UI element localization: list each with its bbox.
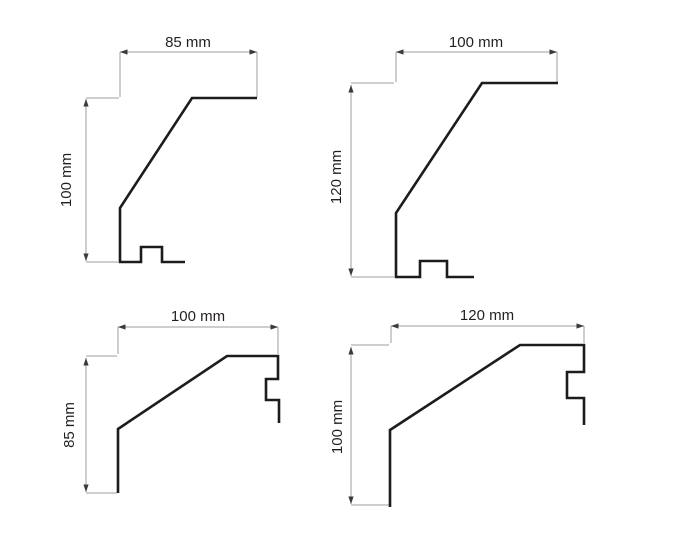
drawing-canvas: 85 mm 100 mm 100 mm 120 mm 100 mm 85 mm <box>0 0 675 540</box>
width-extension-lines <box>120 52 257 97</box>
height-dimension-label: 100 mm <box>58 153 75 207</box>
width-dimension-label: 100 mm <box>171 308 225 325</box>
height-dimension-label: 120 mm <box>328 150 345 204</box>
profile-diagram-bottom-right: 120 mm 100 mm <box>329 307 584 507</box>
profile-outline <box>118 356 279 493</box>
profile-diagram-top-right: 100 mm 120 mm <box>328 34 558 277</box>
profiles-figure: 85 mm 100 mm 100 mm 120 mm 100 mm 85 mm <box>0 0 675 540</box>
height-extension-lines <box>86 356 117 493</box>
profile-diagram-top-left: 85 mm 100 mm <box>58 34 257 262</box>
height-extension-lines <box>86 98 119 262</box>
height-extension-lines <box>351 345 389 505</box>
width-dimension-label: 100 mm <box>449 34 503 51</box>
width-extension-lines <box>118 327 278 354</box>
width-dimension-label: 120 mm <box>460 307 514 324</box>
height-dimension-label: 100 mm <box>329 400 346 454</box>
profile-outline <box>390 345 584 507</box>
width-extension-lines <box>396 52 557 82</box>
profile-diagram-bottom-left: 100 mm 85 mm <box>61 308 279 493</box>
profile-outline <box>396 83 558 277</box>
height-extension-lines <box>351 83 394 277</box>
width-extension-lines <box>391 326 584 343</box>
profile-outline <box>120 98 257 262</box>
height-dimension-label: 85 mm <box>61 402 78 448</box>
width-dimension-label: 85 mm <box>165 34 211 51</box>
